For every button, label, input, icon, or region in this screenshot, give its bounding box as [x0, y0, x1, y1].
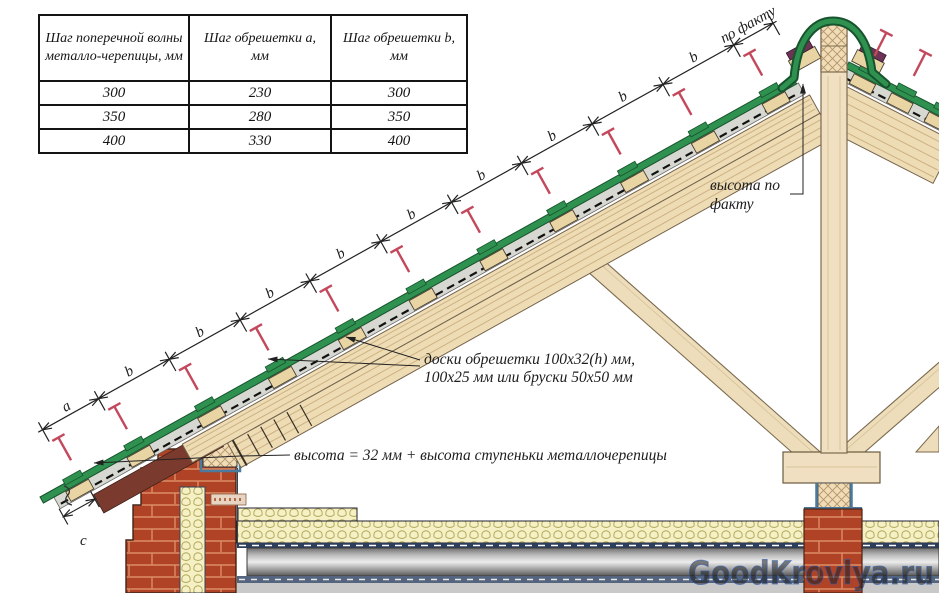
table-header-row: Шаг поперечной волны металло-черепицы, м… — [39, 15, 467, 81]
label-doski-line2: 100х25 мм или бруски 50х50 мм — [424, 369, 633, 386]
wall-insulation — [180, 487, 205, 593]
label-doski-line1: доски обрешетки 100х32(h) мм, — [424, 351, 635, 368]
cell-a-280: 280 — [189, 105, 331, 129]
lattice-spacing-table: Шаг поперечной волны металло-черепицы, м… — [38, 14, 468, 154]
dim-label-c: c — [80, 533, 87, 549]
label-vysota-po-faktu-line1: высота по — [710, 177, 780, 194]
post-footing — [783, 452, 880, 511]
screw-icon — [320, 285, 345, 315]
cell-b-350: 350 — [331, 105, 467, 129]
brace-far — [916, 426, 939, 452]
dim-label-b: b — [474, 167, 489, 185]
screw-icon — [461, 207, 486, 237]
cell-a-230: 230 — [189, 81, 331, 105]
dim-label-b: b — [334, 245, 349, 263]
dim-label-b: b — [193, 323, 208, 341]
king-post — [821, 20, 847, 453]
table-row: 350 280 350 — [39, 105, 467, 129]
watermark: GoodKrovlya.ru — [688, 554, 934, 592]
cell-b-300: 300 — [331, 81, 467, 105]
col-header-wave-pitch: Шаг поперечной волны металло-черепицы, м… — [39, 15, 189, 81]
insulation-top-strip — [238, 508, 357, 521]
label-vysota-po-faktu-line2: факту — [710, 196, 754, 213]
screw-icon — [602, 128, 627, 158]
dim-label-b: b — [404, 206, 419, 224]
col-header-lattice-b: Шаг обрешетки b, мм — [331, 15, 467, 81]
cell-wave-350: 350 — [39, 105, 189, 129]
table-row: 300 230 300 — [39, 81, 467, 105]
dim-label-a: a — [59, 398, 73, 416]
cell-a-330: 330 — [189, 129, 331, 153]
screw-icon — [531, 168, 556, 198]
screw-icon — [673, 89, 698, 119]
screw-icon — [908, 50, 932, 80]
screw-icon — [390, 246, 415, 276]
roofing-diagram-page: a b b b b b b b b b по факту — [0, 0, 939, 593]
screw-icon — [52, 434, 77, 464]
post-body — [821, 20, 847, 453]
col-header-lattice-a: Шаг обрешетки а, мм — [189, 15, 331, 81]
cell-b-400: 400 — [331, 129, 467, 153]
dim-label-b: b — [687, 49, 702, 67]
rafter-board — [227, 113, 833, 467]
table-row: 400 330 400 — [39, 129, 467, 153]
label-vysota-formula: высота = 32 мм + высота ступеньки металл… — [294, 447, 667, 464]
bearing-pad — [818, 483, 850, 509]
dim-label-b: b — [545, 127, 560, 145]
cell-wave-400: 400 — [39, 129, 189, 153]
screw-icon — [108, 403, 133, 433]
cell-wave-300: 300 — [39, 81, 189, 105]
dim-label-b: b — [122, 363, 137, 381]
screw-icon — [250, 324, 275, 354]
screw-icon — [179, 364, 204, 394]
dim-label-b: b — [616, 88, 631, 106]
dim-label-b: b — [263, 284, 278, 302]
screw-icon — [743, 49, 768, 79]
